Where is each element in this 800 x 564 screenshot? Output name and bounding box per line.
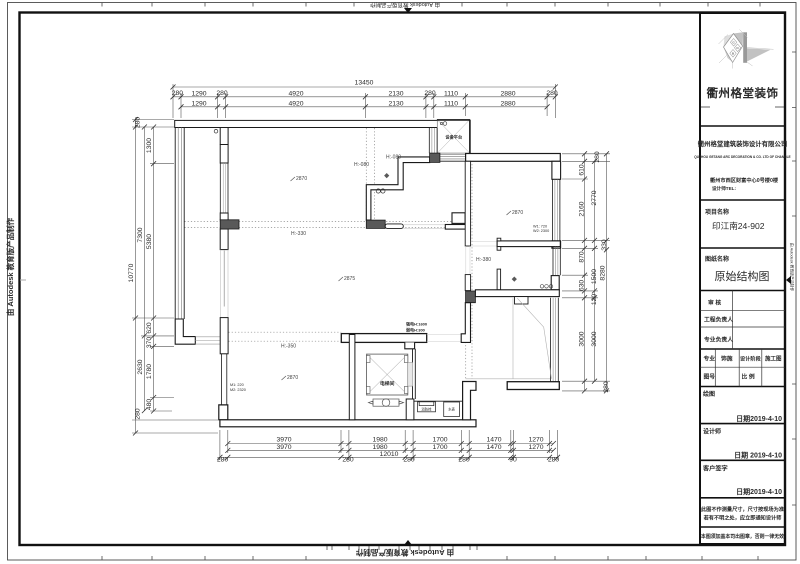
svg-text:2870: 2870 [296,176,307,182]
svg-text:1470: 1470 [486,437,501,444]
svg-text:2870: 2870 [287,375,298,381]
svg-text:2870: 2870 [512,210,523,216]
svg-text:M1: 220: M1: 220 [230,383,244,387]
svg-text:2880: 2880 [500,91,515,98]
svg-text:4920: 4920 [288,101,303,108]
svg-text:280: 280 [216,90,228,97]
svg-text:1290: 1290 [191,91,206,98]
svg-text:H:-330: H:-330 [291,231,306,237]
svg-text:5380: 5380 [146,234,153,249]
svg-text:1700: 1700 [432,444,447,451]
svg-text:设计师: 设计师 [703,428,721,436]
svg-text:图纸名称: 图纸名称 [705,255,729,263]
svg-text:审 核: 审 核 [708,299,721,307]
svg-text:3000: 3000 [591,331,598,346]
svg-text:1270: 1270 [528,444,543,451]
svg-text:此图不作测量尺寸，尺寸按现场为准: 此图不作测量尺寸，尺寸按现场为准 [701,505,785,513]
svg-text:1290: 1290 [191,101,206,108]
svg-text:2770: 2770 [591,190,598,205]
svg-text:3970: 3970 [276,444,291,451]
svg-text:B: B [732,52,734,56]
svg-text:强电H:1600: 强电H:1600 [406,321,428,327]
svg-text:若有不明之处，应立即通知设计师: 若有不明之处，应立即通知设计师 [704,514,783,522]
svg-text:专业: 专业 [704,355,716,363]
svg-text:消防栓: 消防栓 [421,407,432,412]
svg-text:280: 280 [342,457,354,464]
svg-text:13450: 13450 [355,80,374,87]
svg-text:1270: 1270 [528,437,543,444]
svg-text:120: 120 [591,294,598,306]
svg-text:QUZHOU GETANG ARC DECORATION &: QUZHOU GETANG ARC DECORATION & CO. LTD O… [694,155,790,159]
svg-text:1780: 1780 [146,364,153,379]
svg-text:由 Autodesk 教育版产品制作: 由 Autodesk 教育版产品制作 [790,243,795,292]
svg-text:1110: 1110 [444,101,458,108]
svg-text:620: 620 [146,322,153,334]
svg-text:280: 280 [594,151,601,163]
svg-text:设计师TEL:: 设计师TEL: [712,185,736,192]
svg-text:H:-080: H:-080 [386,155,401,161]
svg-text:2630: 2630 [137,359,144,374]
svg-text:图号: 图号 [704,373,716,381]
svg-text:日期2019-4-10: 日期2019-4-10 [736,487,782,496]
svg-text:2880: 2880 [500,101,515,108]
svg-text:280: 280 [217,457,229,464]
svg-text:日期2019-4-10: 日期2019-4-10 [736,414,782,423]
svg-text:饰施: 饰施 [721,355,733,363]
svg-text:W2: 2300: W2: 2300 [533,229,549,233]
svg-text:2160: 2160 [579,201,586,216]
svg-text:水表: 水表 [448,407,455,412]
svg-text:280: 280 [458,457,470,464]
svg-text:施工图: 施工图 [765,355,782,363]
svg-text:280: 280 [403,457,415,464]
svg-text:1980: 1980 [372,437,387,444]
svg-text:原始结构图: 原始结构图 [715,269,770,283]
svg-text:1500: 1500 [591,269,598,284]
svg-text:1470: 1470 [486,444,501,451]
svg-text:280: 280 [424,90,436,97]
svg-text:3000: 3000 [579,331,586,346]
svg-text:2130: 2130 [388,101,403,108]
svg-text:专业负责人: 专业负责人 [704,336,733,344]
svg-text:870: 870 [579,251,586,263]
svg-text:设备平台: 设备平台 [445,134,462,141]
svg-text:280: 280 [135,117,142,129]
svg-text:280: 280 [135,408,142,420]
svg-text:绘图: 绘图 [703,390,715,398]
svg-text:7300: 7300 [137,227,144,242]
svg-text:日期 2019-4-10: 日期 2019-4-10 [734,451,782,460]
svg-text:衢州市西区财富中心0号楼0楼: 衢州市西区财富中心0号楼0楼 [710,176,779,184]
svg-text:8280: 8280 [600,265,607,280]
svg-text:项目名称: 项目名称 [705,208,729,216]
svg-text:弱电H:300: 弱电H:300 [406,327,426,333]
svg-text:工程负责人: 工程负责人 [704,316,733,324]
svg-text:H:-380: H:-380 [476,257,491,263]
svg-text:90: 90 [509,457,517,464]
svg-text:衢州格堂建筑装饰设计有限公司: 衢州格堂建筑装饰设计有限公司 [698,139,787,148]
svg-text:630: 630 [579,280,586,292]
svg-text:衢州格堂装饰: 衢州格堂装饰 [707,86,779,100]
svg-text:比 例: 比 例 [742,373,755,381]
svg-text:1110: 1110 [444,91,458,98]
svg-text:280: 280 [548,457,560,464]
svg-text:12010: 12010 [380,451,399,458]
svg-text:电梯间: 电梯间 [380,380,395,387]
svg-text:M2: 2320: M2: 2320 [230,388,246,392]
svg-text:330: 330 [601,239,608,251]
svg-text:印江南24-902: 印江南24-902 [712,220,765,231]
svg-text:610: 610 [579,164,586,176]
svg-text:3970: 3970 [276,437,291,444]
svg-text:280: 280 [546,90,558,97]
svg-text:由 Autodesk 教育版产品制作: 由 Autodesk 教育版产品制作 [370,1,440,9]
svg-text:2875: 2875 [344,276,355,282]
svg-text:4920: 4920 [288,91,303,98]
svg-text:由 Autodesk 教育版产品制作: 由 Autodesk 教育版产品制作 [355,548,454,558]
svg-text:280: 280 [172,90,184,97]
svg-text:由 Autodesk 教育版产品制作: 由 Autodesk 教育版产品制作 [5,217,15,316]
svg-text:H:-350: H:-350 [281,344,296,350]
svg-text:280: 280 [603,381,610,393]
svg-text:客户签字: 客户签字 [702,465,728,473]
svg-text:480: 480 [146,399,153,411]
svg-text:本图须加盖本司出图章，否则一律无效: 本图须加盖本司出图章，否则一律无效 [701,533,784,540]
svg-text:设计阶段: 设计阶段 [740,355,762,363]
svg-text:1300: 1300 [146,138,153,153]
svg-text:W1: 720: W1: 720 [533,225,547,229]
svg-text:370: 370 [146,337,153,349]
svg-text:H:-080: H:-080 [354,162,369,168]
svg-text:2130: 2130 [388,91,403,98]
svg-text:10770: 10770 [128,263,135,282]
svg-text:1700: 1700 [432,437,447,444]
